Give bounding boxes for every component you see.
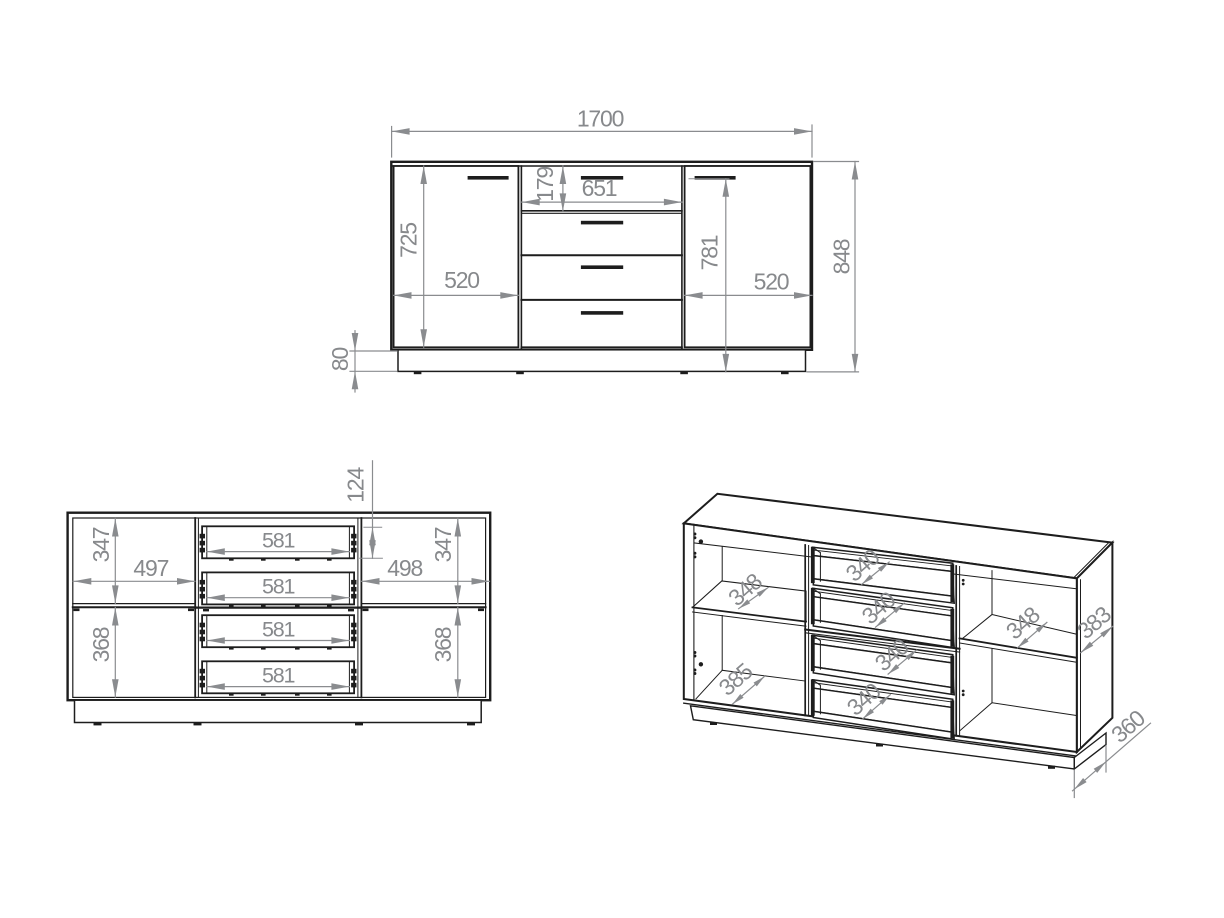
svg-text:581: 581: [262, 575, 295, 599]
svg-text:725: 725: [395, 223, 421, 258]
svg-text:347: 347: [430, 527, 456, 562]
svg-text:179: 179: [532, 167, 558, 202]
svg-text:368: 368: [430, 627, 456, 662]
svg-text:581: 581: [262, 664, 295, 688]
svg-text:651: 651: [582, 175, 617, 201]
svg-text:368: 368: [88, 627, 114, 662]
svg-text:347: 347: [88, 527, 114, 562]
svg-text:581: 581: [262, 529, 295, 553]
svg-text:520: 520: [444, 267, 479, 293]
svg-text:497: 497: [133, 555, 168, 581]
svg-text:80: 80: [327, 348, 353, 372]
svg-text:520: 520: [754, 269, 789, 295]
svg-text:848: 848: [828, 239, 854, 274]
svg-text:781: 781: [697, 235, 723, 270]
svg-text:498: 498: [387, 555, 422, 581]
svg-text:581: 581: [262, 618, 295, 642]
svg-text:1700: 1700: [577, 106, 624, 132]
svg-text:124: 124: [343, 467, 369, 503]
